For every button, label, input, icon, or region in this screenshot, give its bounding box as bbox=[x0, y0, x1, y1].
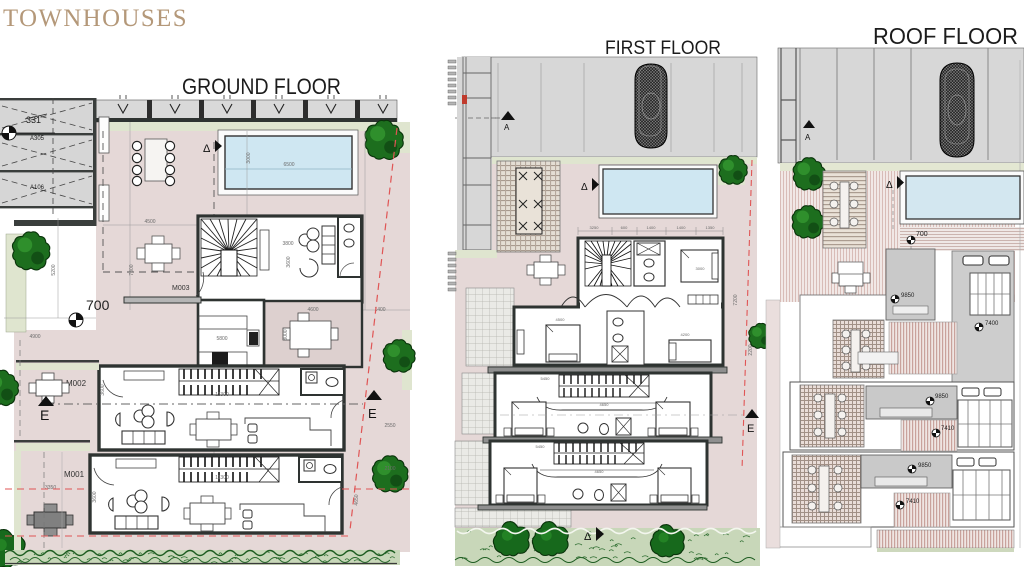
svg-text:11300: 11300 bbox=[215, 475, 229, 481]
svg-text:3250: 3250 bbox=[590, 225, 600, 230]
svg-text:1350: 1350 bbox=[706, 225, 716, 230]
svg-text:5200: 5200 bbox=[51, 264, 57, 275]
svg-text:5450: 5450 bbox=[541, 376, 551, 381]
svg-text:7200: 7200 bbox=[733, 294, 739, 305]
svg-text:3600: 3600 bbox=[286, 256, 292, 267]
svg-text:331: 331 bbox=[26, 115, 41, 125]
svg-text:E: E bbox=[368, 406, 377, 421]
svg-text:E: E bbox=[747, 423, 754, 435]
svg-text:3350: 3350 bbox=[45, 485, 56, 491]
svg-text:A: A bbox=[805, 133, 811, 142]
svg-text:3800: 3800 bbox=[282, 241, 293, 247]
svg-text:11300: 11300 bbox=[215, 392, 229, 398]
svg-text:A: A bbox=[504, 123, 510, 132]
svg-text:1400: 1400 bbox=[677, 225, 687, 230]
svg-text:4900: 4900 bbox=[29, 334, 40, 340]
svg-text:7800: 7800 bbox=[129, 264, 135, 275]
svg-text:4650: 4650 bbox=[595, 469, 605, 474]
svg-text:700: 700 bbox=[86, 297, 110, 313]
svg-text:7410: 7410 bbox=[906, 499, 920, 505]
svg-text:ROOF FLOOR: ROOF FLOOR bbox=[873, 23, 1018, 49]
svg-text:7400: 7400 bbox=[985, 321, 999, 327]
svg-text:4200: 4200 bbox=[681, 332, 691, 337]
svg-text:M001: M001 bbox=[64, 470, 85, 479]
svg-text:Δ: Δ bbox=[584, 531, 592, 543]
svg-text:A305: A305 bbox=[30, 136, 45, 142]
svg-text:5800: 5800 bbox=[216, 336, 227, 342]
svg-text:Δ: Δ bbox=[203, 143, 211, 155]
svg-text:3600: 3600 bbox=[100, 384, 106, 395]
svg-text:700: 700 bbox=[916, 231, 928, 238]
svg-text:4650: 4650 bbox=[600, 402, 610, 407]
svg-text:TOWNHOUSES: TOWNHOUSES bbox=[3, 5, 188, 32]
svg-text:4600: 4600 bbox=[307, 307, 318, 313]
svg-text:6500: 6500 bbox=[283, 162, 294, 168]
svg-text:M003: M003 bbox=[172, 285, 190, 292]
svg-text:2100: 2100 bbox=[384, 466, 395, 472]
svg-text:3000: 3000 bbox=[696, 266, 706, 271]
svg-text:600: 600 bbox=[621, 225, 628, 230]
svg-text:GROUND FLOOR: GROUND FLOOR bbox=[182, 74, 341, 99]
svg-text:Δ: Δ bbox=[581, 182, 588, 193]
svg-text:FIRST FLOOR: FIRST FLOOR bbox=[605, 38, 721, 59]
svg-text:5450: 5450 bbox=[536, 444, 546, 449]
svg-text:2550: 2550 bbox=[384, 423, 395, 429]
svg-text:A106: A106 bbox=[30, 185, 45, 191]
svg-text:3600: 3600 bbox=[92, 491, 98, 502]
svg-text:9850: 9850 bbox=[935, 394, 949, 400]
svg-text:E: E bbox=[40, 407, 49, 423]
svg-text:4650: 4650 bbox=[354, 494, 360, 505]
svg-text:9850: 9850 bbox=[901, 293, 915, 299]
svg-text:Δ: Δ bbox=[886, 180, 893, 191]
svg-text:1400: 1400 bbox=[647, 225, 657, 230]
svg-text:7410: 7410 bbox=[941, 426, 955, 432]
svg-text:4500: 4500 bbox=[144, 219, 155, 225]
svg-text:4500: 4500 bbox=[556, 317, 566, 322]
svg-text:9850: 9850 bbox=[918, 463, 932, 469]
svg-text:3000: 3000 bbox=[283, 329, 289, 340]
